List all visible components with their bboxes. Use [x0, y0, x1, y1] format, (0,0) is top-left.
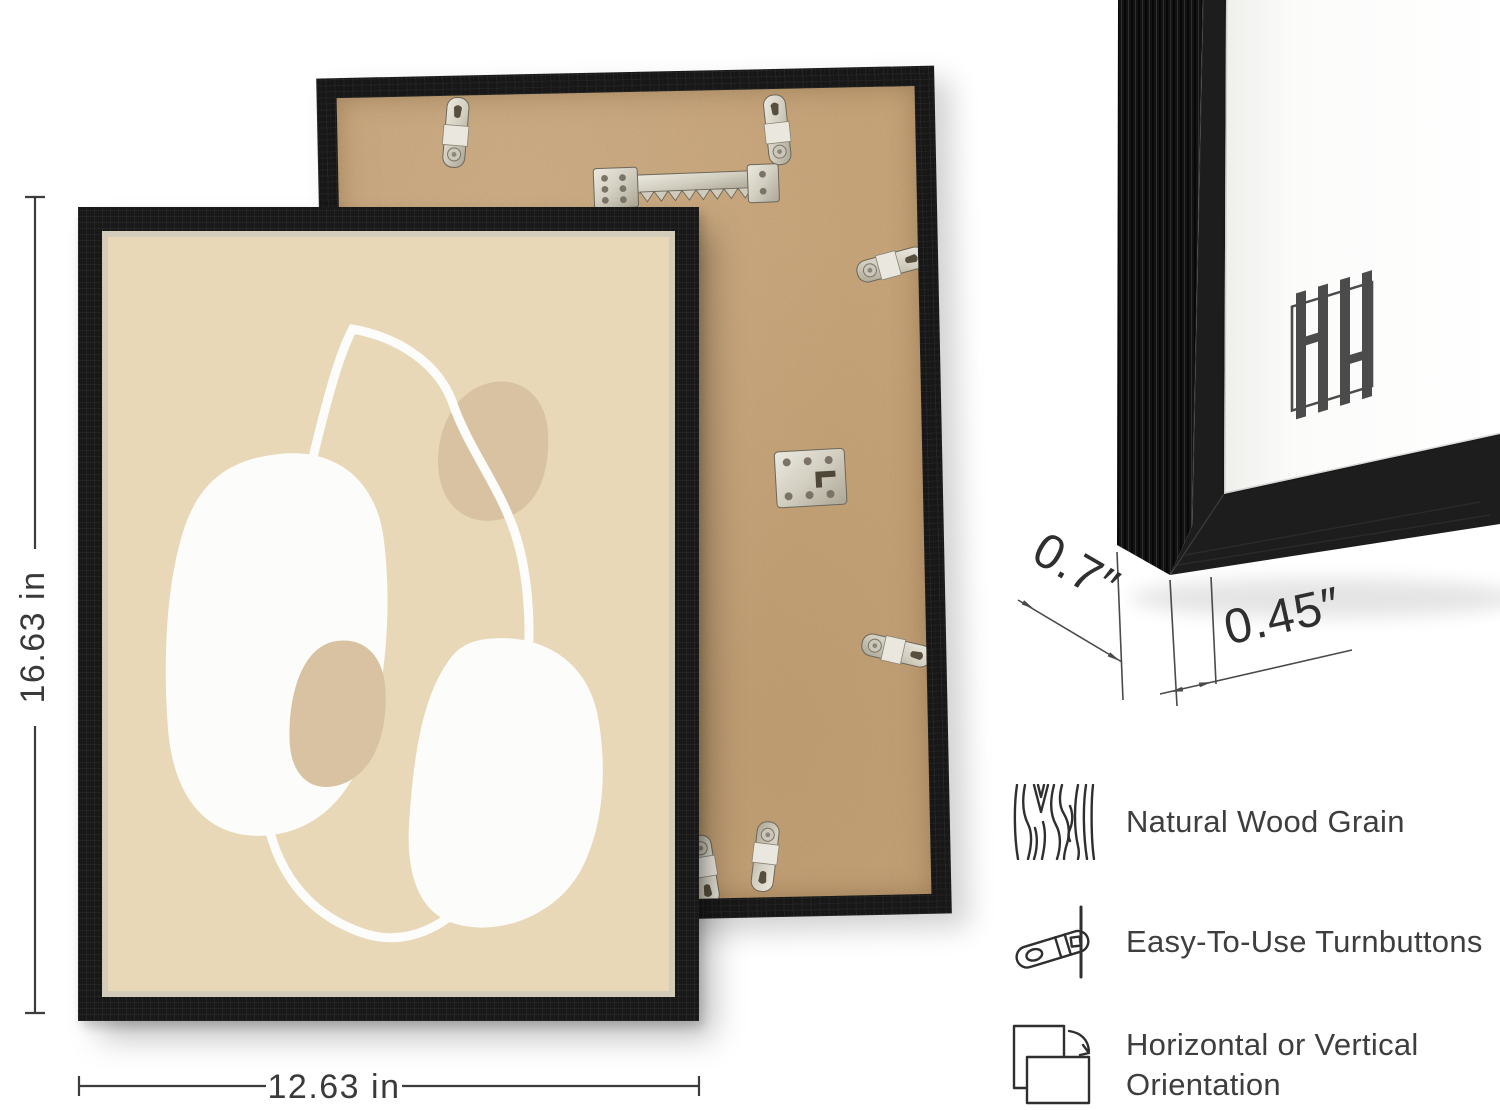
frame-inner-lip	[102, 231, 675, 997]
feature-label-line-1: Horizontal or Vertical	[1126, 1025, 1419, 1065]
feature-row-turnbuttons: Easy-To-Use Turnbuttons	[1012, 904, 1483, 980]
product-listing-image: 0.7″ 0.45″ 16.63 in 12.63 in	[0, 0, 1500, 1110]
height-dimension-label: 16.63 in	[14, 571, 52, 704]
hanger-plate	[774, 448, 847, 508]
feature-label-line-2: Orientation	[1126, 1065, 1419, 1105]
feature-label: Easy-To-Use Turnbuttons	[1126, 922, 1483, 962]
height-dimension: 16.63 in	[14, 197, 52, 1013]
feature-label: Horizontal or Vertical Orientation	[1126, 1025, 1419, 1105]
frame-side-face	[1117, 0, 1203, 575]
abstract-artwork	[108, 237, 669, 991]
wood-grain-icon	[1012, 784, 1096, 860]
white-mat	[1224, 0, 1500, 494]
width-dimension: 12.63 in	[79, 1068, 699, 1106]
depth-dimension-label: 0.7″	[1024, 522, 1128, 613]
feature-row-wood-grain: Natural Wood Grain	[1012, 784, 1405, 860]
feature-row-orientation: Horizontal or Vertical Orientation	[1012, 1024, 1419, 1106]
corner-detail-view: 0.7″ 0.45″	[1000, 0, 1500, 740]
turnbutton-icon	[1012, 904, 1096, 980]
orientation-icon	[1012, 1024, 1096, 1106]
feature-label: Natural Wood Grain	[1126, 802, 1405, 842]
frame-front-view	[78, 207, 699, 1021]
width-dimension-label: 12.63 in	[268, 1068, 401, 1106]
